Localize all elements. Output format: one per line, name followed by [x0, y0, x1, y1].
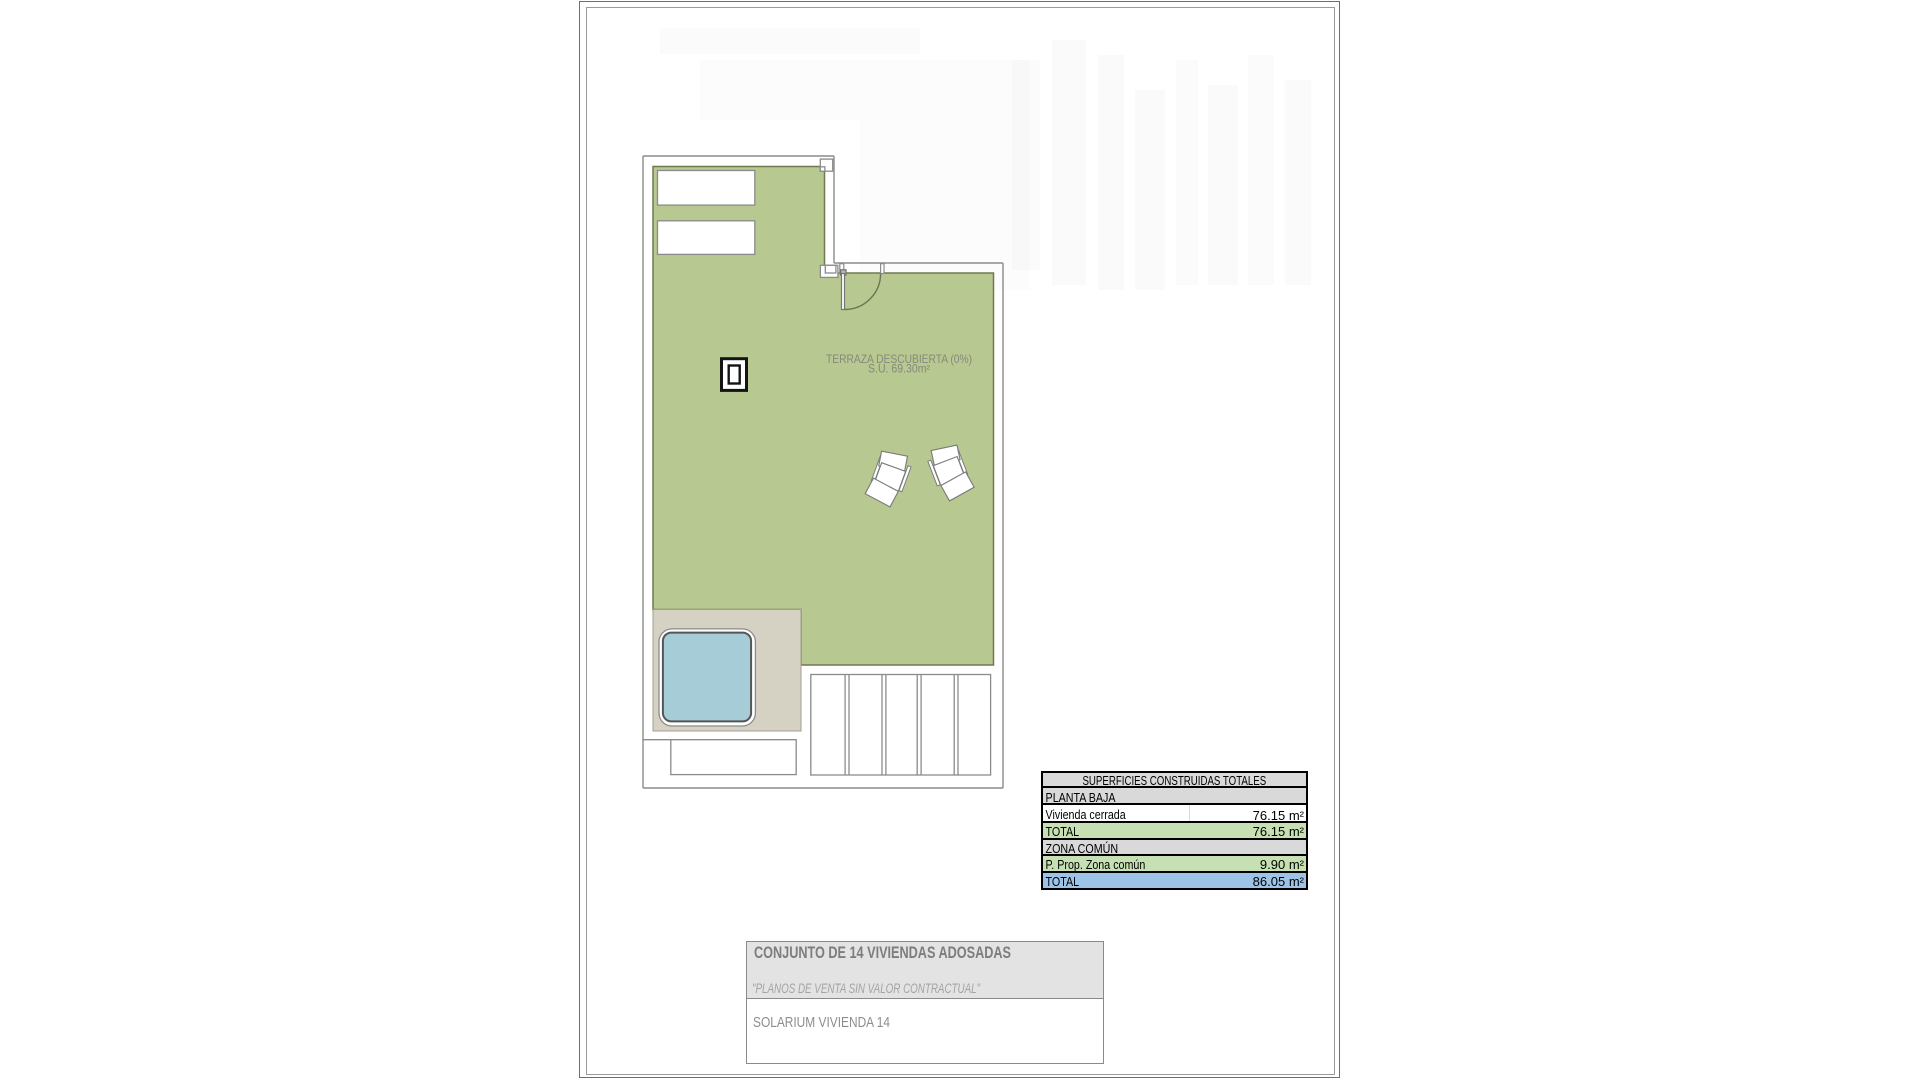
svg-text:S.U. 69.30m²: S.U. 69.30m²	[868, 363, 930, 376]
